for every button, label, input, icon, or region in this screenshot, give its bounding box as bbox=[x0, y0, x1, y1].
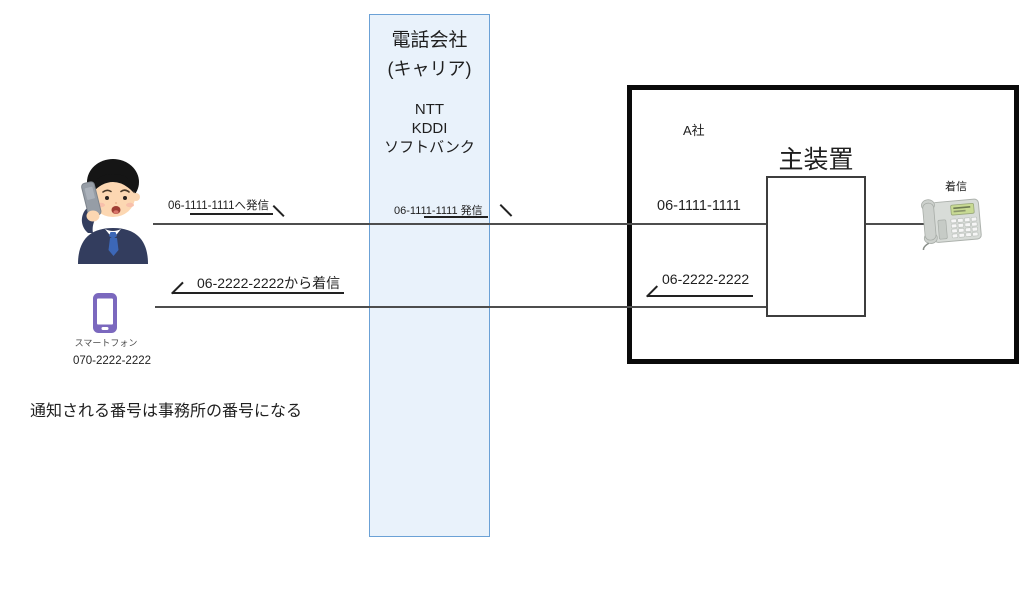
inbound-call-line bbox=[155, 306, 766, 308]
carrier-outbound-arrow bbox=[424, 216, 488, 218]
carrier-title-line2: (キャリア) bbox=[369, 55, 490, 81]
man-on-phone-icon bbox=[66, 152, 158, 264]
outbound-call-line bbox=[153, 223, 766, 225]
main-device-title: 主装置 bbox=[756, 140, 876, 176]
caller-outbound-arrowhead bbox=[273, 205, 285, 217]
desk-phone-icon bbox=[918, 192, 990, 250]
caller-inbound-arrow bbox=[172, 292, 344, 294]
main-device-box bbox=[766, 176, 866, 317]
diagram-canvas: 電話会社 (キャリア) NTT KDDI ソフトバンク A社 主装置 06-11… bbox=[0, 0, 1024, 597]
office-company-label: A社 bbox=[683, 120, 705, 139]
carrier-title-line1: 電話会社 bbox=[369, 25, 490, 52]
smartphone-icon bbox=[92, 292, 118, 334]
carrier-provider: KDDI bbox=[369, 119, 490, 138]
office-outbound-arrow bbox=[647, 295, 753, 297]
office-outbound-number: 06-2222-2222 bbox=[662, 271, 749, 287]
office-inbound-number: 06-1111-1111 bbox=[657, 198, 741, 214]
caller-outbound-label: 06-1111-1111へ発信 bbox=[168, 197, 269, 213]
note-text: 通知される番号は事務所の番号になる bbox=[30, 397, 302, 421]
carrier-outbound-arrowhead bbox=[500, 204, 513, 217]
carrier-box bbox=[369, 14, 490, 537]
carrier-provider: ソフトバンク bbox=[369, 138, 490, 157]
caller-outbound-arrow bbox=[190, 213, 273, 215]
smartphone-number: 070-2222-2222 bbox=[73, 355, 151, 367]
carrier-provider: NTT bbox=[369, 100, 490, 119]
smartphone-label: スマートフォン bbox=[70, 336, 142, 349]
caller-inbound-label: 06-2222-2222から着信 bbox=[197, 273, 340, 293]
carrier-provider-list: NTT KDDI ソフトバンク bbox=[369, 100, 490, 157]
